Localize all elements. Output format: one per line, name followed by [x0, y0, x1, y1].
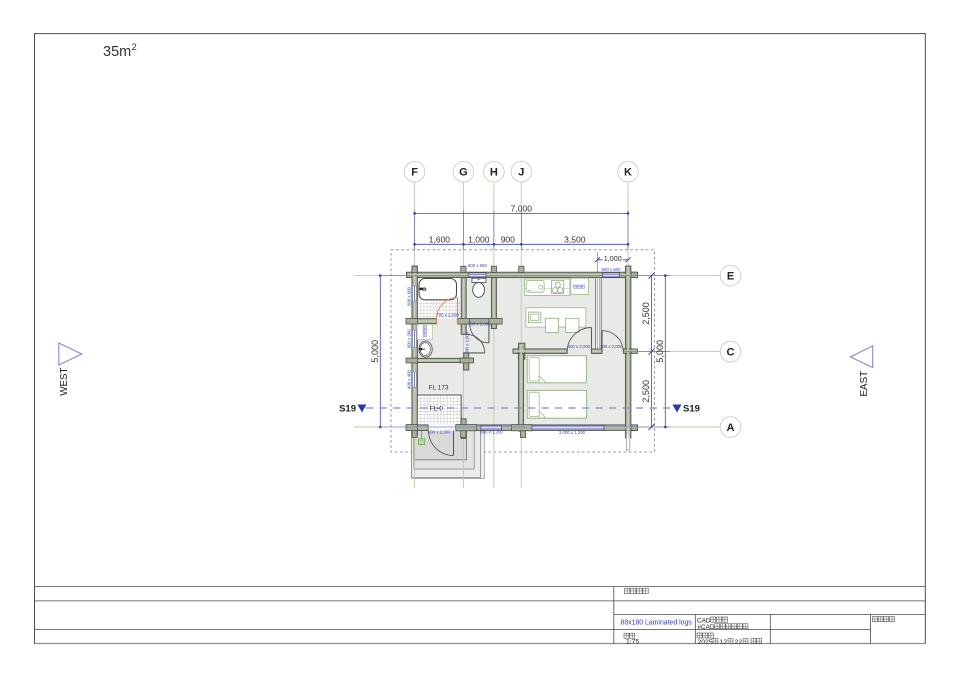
svg-text:700 x 2,000: 700 x 2,000	[465, 331, 470, 354]
svg-text:F: F	[411, 167, 418, 179]
svg-text:2025: 2025	[698, 639, 713, 646]
svg-text:22: 22	[735, 639, 743, 646]
svg-text:1,000: 1,000	[468, 234, 490, 244]
svg-text:A: A	[727, 422, 735, 434]
svg-text:600 x 600: 600 x 600	[406, 286, 411, 305]
svg-text:FL-0: FL-0	[430, 405, 444, 412]
svg-text:88x180 Laminated logs: 88x180 Laminated logs	[621, 619, 693, 626]
svg-text:700 x 2,000: 700 x 2,000	[468, 322, 491, 327]
svg-text:860 x 1,200: 860 x 1,200	[480, 430, 503, 435]
svg-text:600 x 900: 600 x 900	[406, 329, 411, 348]
svg-text:600 x 600: 600 x 600	[602, 267, 621, 272]
svg-text:900 x 2,000: 900 x 2,000	[428, 430, 451, 435]
svg-text:EAST: EAST	[859, 371, 870, 397]
svg-text:35m: 35m	[103, 44, 131, 60]
svg-text:J: J	[518, 167, 524, 179]
svg-text:H: H	[490, 167, 498, 179]
svg-text:C: C	[727, 347, 735, 359]
svg-text:400 x 400: 400 x 400	[406, 369, 411, 388]
svg-text:2: 2	[132, 42, 137, 53]
svg-text:1:75: 1:75	[626, 639, 639, 646]
svg-text:900: 900	[501, 234, 515, 244]
svg-text:#CAD: #CAD	[698, 624, 715, 631]
svg-text:WEST: WEST	[59, 367, 70, 395]
svg-text:800 x 2,000: 800 x 2,000	[568, 344, 591, 349]
svg-text:600 x 600: 600 x 600	[468, 263, 487, 268]
svg-text:700 x 2,000: 700 x 2,000	[600, 344, 623, 349]
svg-text:1,000: 1,000	[604, 254, 622, 263]
svg-text:2,000 x 1,200: 2,000 x 1,200	[559, 430, 586, 435]
svg-text:5,000: 5,000	[370, 340, 380, 363]
svg-text:S19: S19	[339, 404, 356, 415]
svg-text:2,500: 2,500	[641, 380, 651, 403]
svg-text:1,600: 1,600	[429, 234, 451, 244]
svg-text:5,000: 5,000	[655, 340, 665, 363]
svg-text:2,500: 2,500	[641, 302, 651, 325]
svg-text:12: 12	[720, 639, 728, 646]
svg-text:700 x 2,000: 700 x 2,000	[436, 312, 459, 317]
svg-text:3,500: 3,500	[564, 234, 586, 244]
svg-text:K: K	[624, 167, 632, 179]
svg-text:E: E	[727, 271, 734, 283]
svg-text:G: G	[459, 167, 468, 179]
svg-text:FL 173: FL 173	[429, 384, 449, 391]
svg-text:S19: S19	[683, 404, 700, 415]
